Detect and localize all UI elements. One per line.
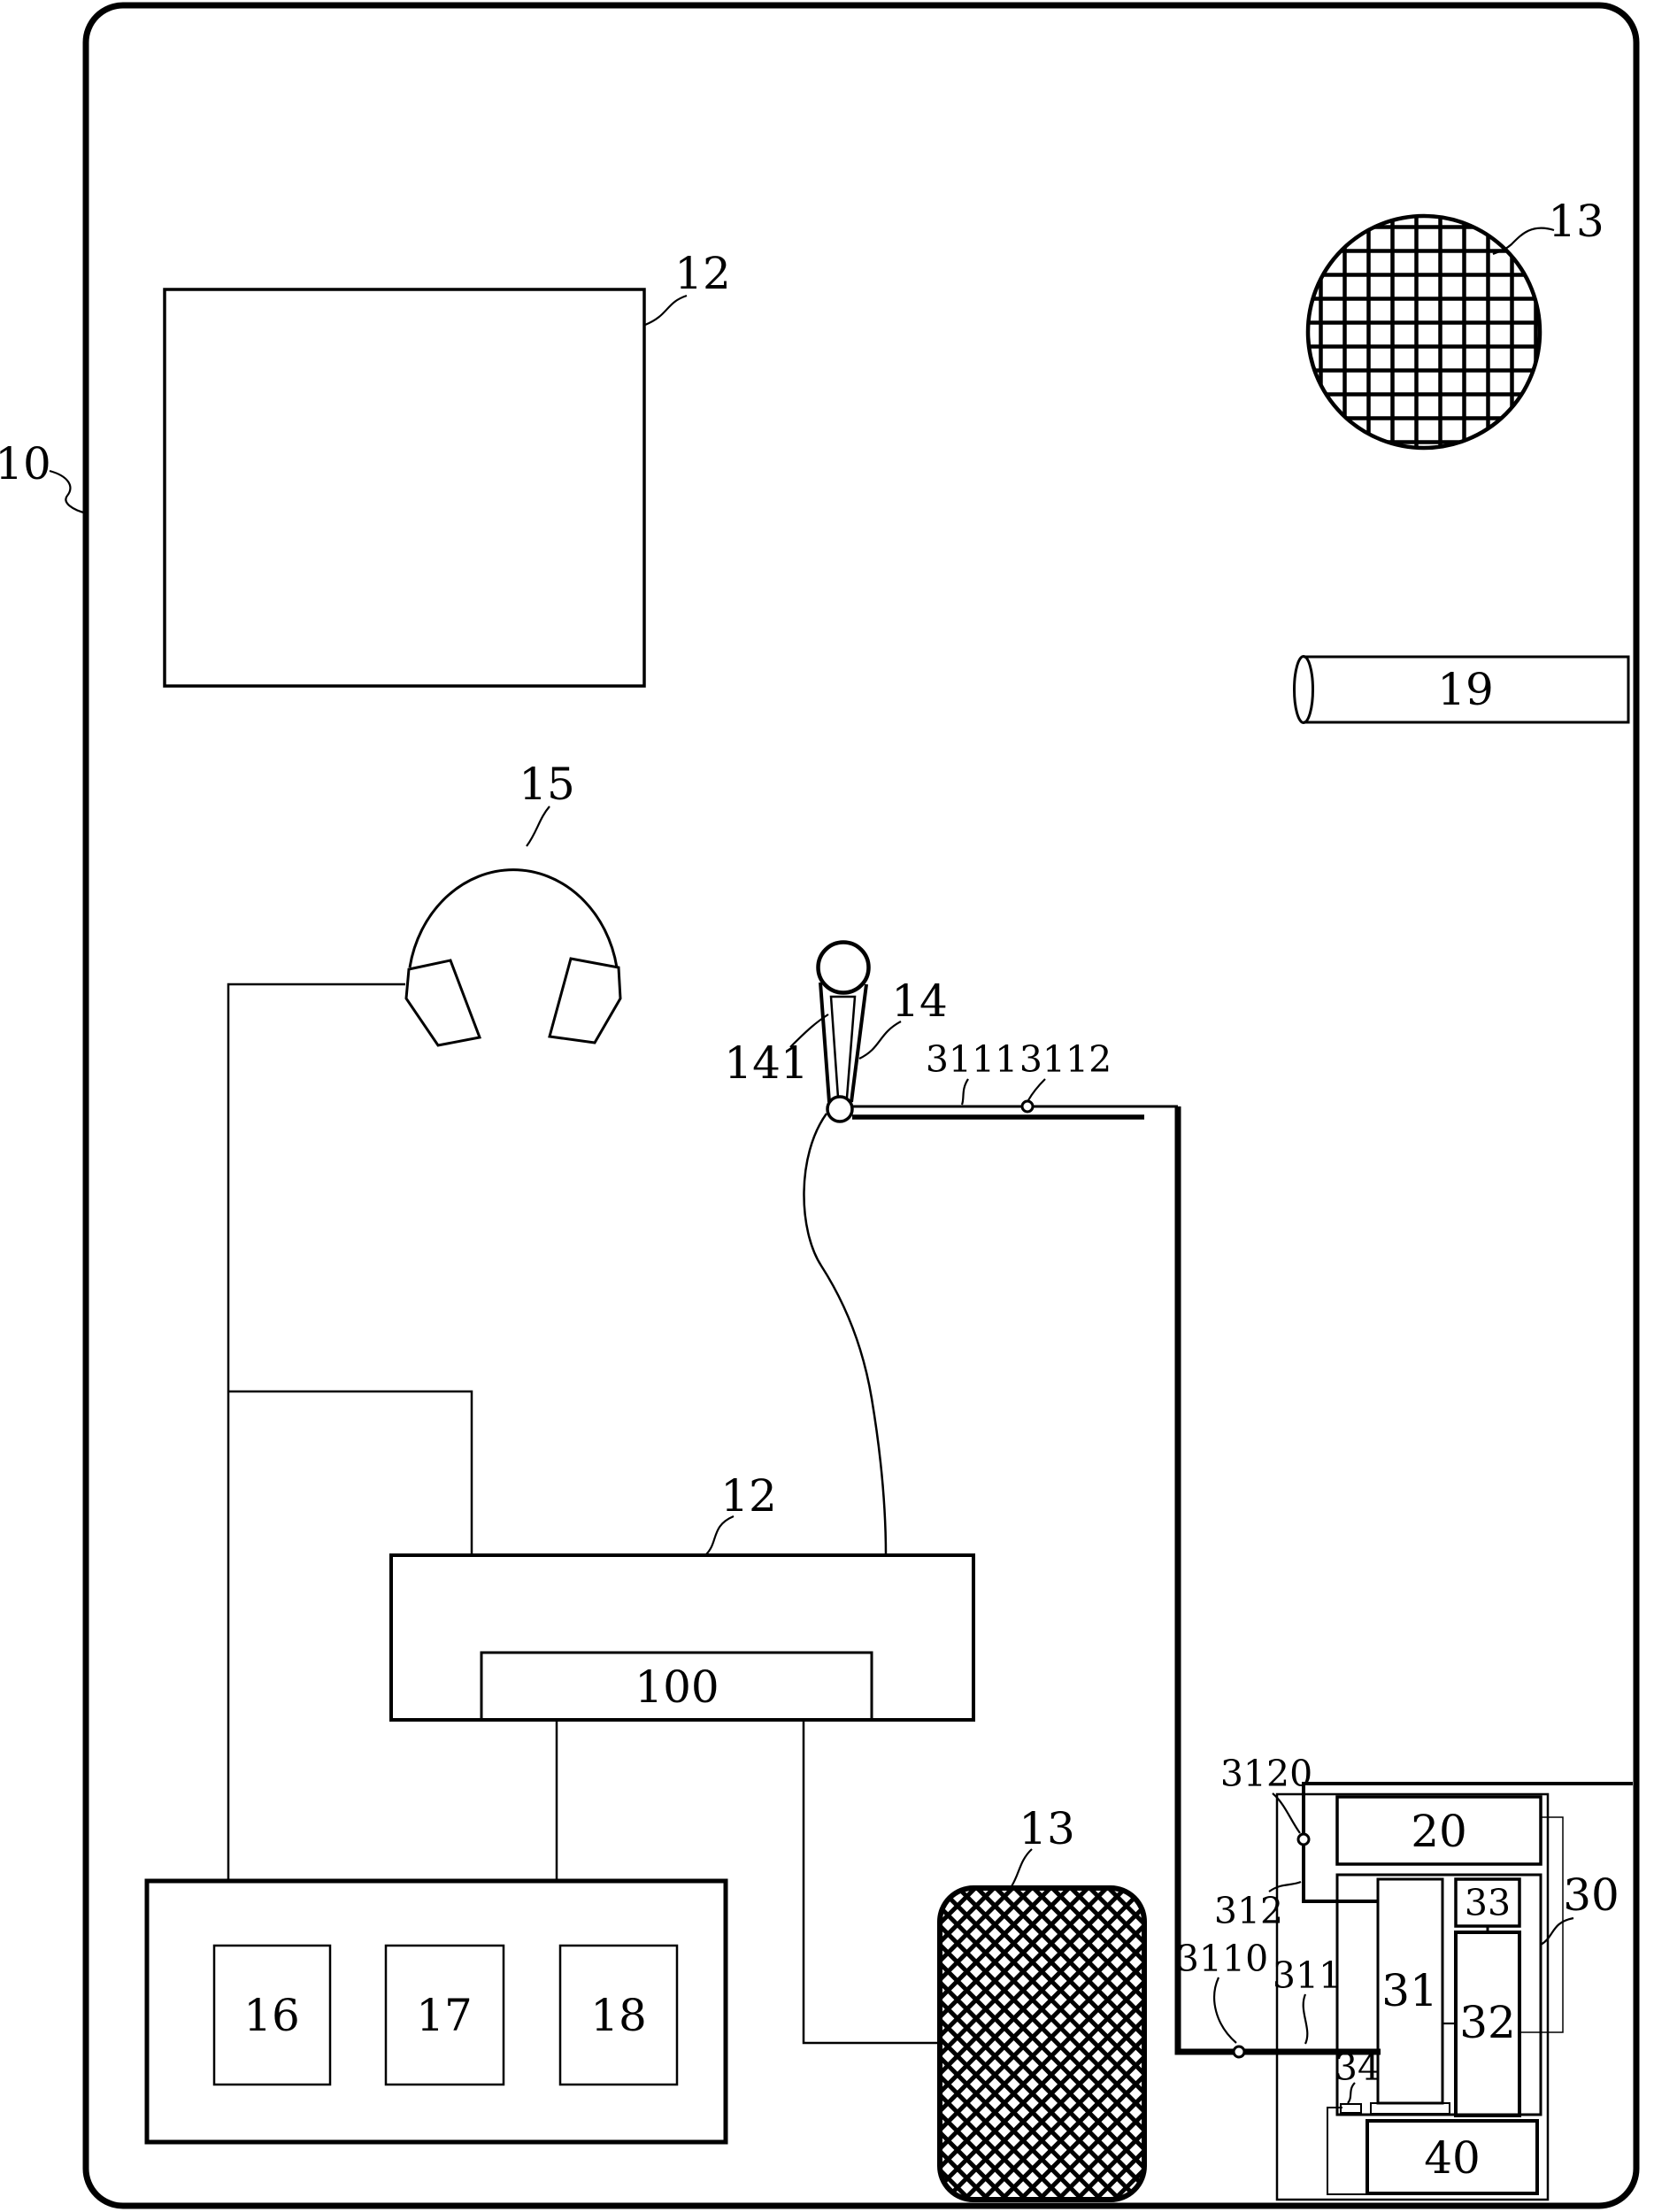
label-panel-mid: 12 xyxy=(720,1470,777,1522)
leader-wire-node-top xyxy=(1028,1079,1045,1100)
label-mic-handle: 141 xyxy=(724,1037,808,1089)
label-cylinder: 19 xyxy=(1437,664,1494,715)
label-wire-311: 311 xyxy=(1273,1954,1342,1997)
label-box-18: 18 xyxy=(590,1990,647,2041)
label-wire-node-top: 3112 xyxy=(1019,1038,1112,1081)
label-panel-top-left: 12 xyxy=(674,248,731,299)
label-mesh-circle: 13 xyxy=(1548,196,1604,247)
label-mesh-pad: 13 xyxy=(1019,1803,1075,1854)
leader-wire-thin xyxy=(962,1079,968,1105)
label-node-3120: 3120 xyxy=(1220,1753,1312,1795)
label-frame: 10 xyxy=(0,438,51,489)
leader-node-3110 xyxy=(1214,1977,1236,2043)
box-34 xyxy=(1341,2104,1361,2113)
label-panel-mid-inner: 100 xyxy=(635,1661,719,1713)
diagram-svg: 10 12 13 19 15 14 141 3111 3112 100 12 xyxy=(0,0,1654,2212)
leader-panel-mid xyxy=(706,1516,734,1554)
label-box-32: 32 xyxy=(1459,1997,1516,2048)
wire-node-3112 xyxy=(1022,1101,1033,1112)
label-box-20: 20 xyxy=(1411,1806,1467,1857)
leader-headphones xyxy=(527,806,550,846)
leader-panel-top-left xyxy=(645,296,687,325)
label-box-17: 17 xyxy=(416,1990,473,2041)
label-node-3110: 3110 xyxy=(1176,1938,1268,1980)
label-assembly-30: 30 xyxy=(1563,1869,1619,1921)
panel-top-left xyxy=(165,289,644,686)
headphone-cable xyxy=(228,984,405,1881)
wire-node-3110 xyxy=(1234,2046,1244,2057)
wire-node-3120 xyxy=(1298,1834,1309,1845)
figure-canvas: 10 12 13 19 15 14 141 3111 3112 100 12 xyxy=(0,0,1654,2212)
headphone-right-cup xyxy=(550,959,620,1043)
label-box-33: 33 xyxy=(1465,1882,1511,1924)
label-box-31: 31 xyxy=(1381,1965,1438,2016)
label-box-16: 16 xyxy=(243,1990,300,2041)
leader-wire-311 xyxy=(1304,1994,1308,2044)
pedestal-31 xyxy=(1371,2103,1450,2114)
mic-tip xyxy=(827,1097,852,1121)
headphone-band xyxy=(410,870,617,967)
cylinder-end-cap xyxy=(1295,657,1313,723)
mic-cable xyxy=(804,1114,886,1555)
label-headphones: 15 xyxy=(519,759,575,810)
label-box-40: 40 xyxy=(1424,2132,1481,2184)
mic-body-outline xyxy=(820,983,866,1102)
label-wire-312: 312 xyxy=(1214,1890,1283,1932)
leader-frame xyxy=(50,471,87,513)
leader-mesh-pad xyxy=(1012,1849,1032,1886)
wire-34-to-40 xyxy=(1327,2108,1367,2194)
label-microphone: 14 xyxy=(891,975,948,1027)
cable-branch xyxy=(228,1391,472,1555)
mic-head xyxy=(819,943,869,993)
label-wire-thin: 3111 xyxy=(926,1038,1018,1081)
leader-microphone xyxy=(859,1021,901,1059)
leader-mesh-circle xyxy=(1493,228,1554,254)
mesh-circle xyxy=(1308,216,1540,448)
label-box-34: 34 xyxy=(1335,2046,1381,2089)
leader-assembly-30 xyxy=(1541,1918,1573,1945)
wire-panel-to-pad xyxy=(804,1720,940,2043)
mesh-pad xyxy=(940,1888,1144,2200)
mic-body-inner xyxy=(831,997,855,1098)
headphone-left-cup xyxy=(406,960,480,1045)
